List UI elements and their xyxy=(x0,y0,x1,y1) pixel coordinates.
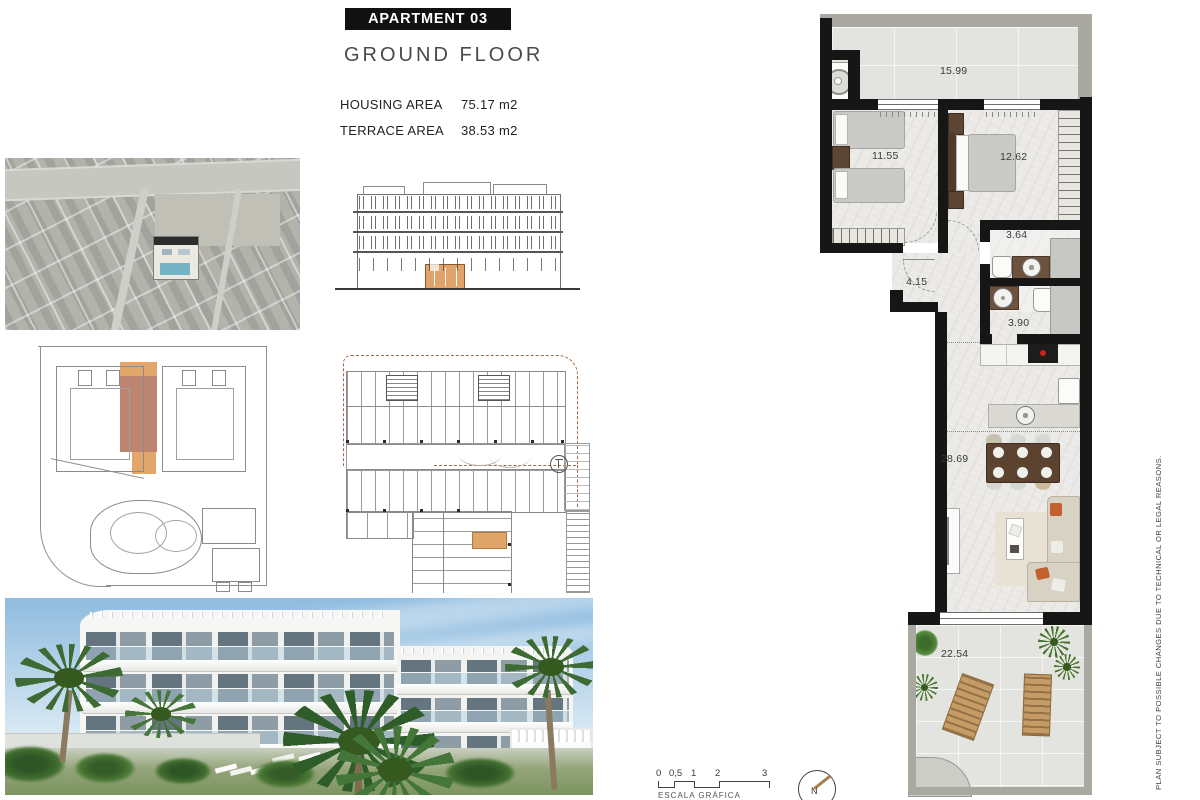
floor-title: GROUND FLOOR xyxy=(344,44,543,67)
wall xyxy=(938,110,948,253)
terrace-wall xyxy=(908,625,916,795)
floor-slab-line xyxy=(353,231,563,233)
floor-slab-line xyxy=(353,211,563,213)
scale-tick: 2 xyxy=(715,768,720,779)
wall xyxy=(848,50,860,100)
balcony-slab xyxy=(80,660,400,671)
compass-north-label: N xyxy=(811,786,818,796)
housing-area-label: HOUSING AREA xyxy=(340,97,443,112)
wall xyxy=(908,612,940,625)
tv-screen xyxy=(947,517,949,565)
scale-segment xyxy=(674,781,695,788)
floor-slab-line xyxy=(353,251,563,253)
shrub xyxy=(155,758,211,784)
shrub xyxy=(75,753,135,783)
storage-row xyxy=(346,511,414,539)
column-dot xyxy=(494,440,497,443)
side-strip xyxy=(564,443,590,511)
disclaimer-text: PLAN SUBJECT TO POSSIBLE CHANGES DUE TO … xyxy=(1154,395,1163,790)
roof-railing xyxy=(90,612,390,618)
site-pool xyxy=(160,263,190,275)
table-item xyxy=(1010,545,1019,553)
building-inner-left xyxy=(70,388,130,460)
amenity-small xyxy=(216,582,230,592)
nightstand xyxy=(832,146,850,170)
room-label-terrace-bottom: 22.54 xyxy=(941,649,968,661)
wardrobe xyxy=(1058,110,1082,224)
building-tab xyxy=(106,370,120,386)
terrace-area-value: 38.53 m2 xyxy=(461,123,518,138)
site-detail xyxy=(162,249,172,255)
column-dot xyxy=(508,583,511,586)
terrace-area-label: TERRACE AREA xyxy=(340,123,444,138)
boundary-line xyxy=(38,346,266,347)
ramp-curve xyxy=(488,441,532,468)
room-label-bedroom-1: 11.55 xyxy=(872,151,899,163)
building-render-photo xyxy=(5,598,593,795)
cooktop xyxy=(1028,344,1058,363)
wall xyxy=(820,243,903,253)
wall xyxy=(980,334,992,344)
wall xyxy=(980,264,990,334)
plan-sheet: APARTMENT 03 GROUND FLOOR HOUSING AREA 7… xyxy=(0,0,1200,800)
ground-line xyxy=(335,288,580,290)
wall xyxy=(938,99,984,110)
wall xyxy=(980,230,990,242)
apartment-title: APARTMENT 03 xyxy=(345,8,511,30)
palm-canopy xyxy=(125,690,197,738)
boundary-line xyxy=(266,346,267,586)
bed-headboard xyxy=(948,133,956,191)
bathroom-sink xyxy=(1022,258,1041,277)
wall xyxy=(980,220,1092,230)
pool-inner xyxy=(155,520,197,552)
symbol-bar xyxy=(555,459,563,460)
column-dot xyxy=(346,509,349,512)
window xyxy=(984,99,1040,110)
column-dot xyxy=(383,440,386,443)
entry-door-leaf xyxy=(903,259,935,260)
sofa-pillow-orange xyxy=(1035,567,1050,580)
site-detail xyxy=(178,249,190,255)
shrub xyxy=(445,758,515,788)
bathroom-sink xyxy=(993,288,1013,308)
glass-balustrade xyxy=(86,646,394,661)
highlighted-site-building xyxy=(153,236,199,280)
building-inner-right xyxy=(176,388,234,460)
garage-parking-bottom xyxy=(346,469,566,513)
sofa-pillow-orange xyxy=(1050,503,1062,516)
cooktop-burner-red xyxy=(1040,350,1046,356)
building-tab xyxy=(182,370,196,386)
window-blind-marks xyxy=(880,112,936,117)
window-blind-marks xyxy=(986,112,1038,117)
building-elevation xyxy=(335,178,580,293)
room-floor-terrace-top xyxy=(832,27,1078,99)
building-tab xyxy=(212,370,226,386)
bed-pillow xyxy=(835,171,848,199)
scale-tick: 1 xyxy=(691,768,696,779)
key-plan xyxy=(338,343,590,593)
window-row-ground xyxy=(359,258,557,271)
palm-canopy xyxy=(15,644,123,712)
room-label-bathroom-1: 3.64 xyxy=(1006,230,1027,242)
sofa-pillow xyxy=(1051,578,1066,592)
place-settings xyxy=(993,447,1004,458)
kitchen-sink xyxy=(1016,406,1035,425)
scale-tick: 0,5 xyxy=(669,768,682,779)
column-dot xyxy=(420,440,423,443)
coffee-table xyxy=(1006,518,1024,560)
satellite-map xyxy=(5,158,300,330)
counter-divider xyxy=(1006,345,1007,365)
room-label-bathroom-2: 3.90 xyxy=(1008,318,1029,330)
amenity-small xyxy=(238,582,252,592)
room-label-bedroom-2: 12.62 xyxy=(1000,152,1027,164)
site-plan xyxy=(30,340,270,592)
sun-lounger xyxy=(1022,674,1052,737)
window xyxy=(878,99,938,110)
garage-lower-wing xyxy=(412,511,512,593)
wall xyxy=(890,302,938,312)
scale-tick: 3 xyxy=(762,768,767,779)
column-dot xyxy=(508,543,511,546)
room-label-hall: 4.15 xyxy=(906,277,927,289)
garage-aisle xyxy=(346,443,566,471)
column-dot xyxy=(561,440,564,443)
wall xyxy=(990,278,1092,286)
column-dot xyxy=(531,440,534,443)
sliding-glass-door xyxy=(940,612,1043,625)
exterior-wall xyxy=(1078,14,1092,99)
amenity-block xyxy=(202,508,256,544)
terrace-wall xyxy=(1084,625,1092,795)
toilet xyxy=(992,256,1012,278)
scale-tick: 0 xyxy=(656,768,661,779)
shower xyxy=(1050,284,1082,336)
kitchen-appliance xyxy=(1058,378,1080,404)
window-row xyxy=(359,196,557,209)
wall xyxy=(1043,612,1092,625)
housing-area-value: 75.17 m2 xyxy=(461,97,518,112)
building-tab xyxy=(78,370,92,386)
washer-drum xyxy=(834,77,842,85)
zone-divider-dotted xyxy=(947,431,1080,432)
dining-table xyxy=(986,443,1060,483)
wing-divider xyxy=(443,512,444,593)
turning-circle-symbol xyxy=(550,455,568,473)
stairs-right xyxy=(566,511,590,593)
column-dot xyxy=(420,509,423,512)
column-dot xyxy=(457,440,460,443)
sofa-pillow xyxy=(1051,541,1063,553)
table-item xyxy=(1008,523,1022,537)
scale-segment xyxy=(694,781,720,788)
stair-core xyxy=(386,375,418,401)
column-dot xyxy=(383,509,386,512)
room-label-living: 28.69 xyxy=(941,454,968,466)
garage-line xyxy=(347,406,565,407)
palm-canopy xyxy=(505,636,593,698)
window-row xyxy=(359,216,557,229)
garage-parking-top xyxy=(346,371,566,445)
nightstand xyxy=(948,113,964,135)
amenity-block xyxy=(212,548,260,582)
column-dot xyxy=(346,440,349,443)
boundary-line xyxy=(40,346,41,496)
zone-divider-dotted xyxy=(947,342,980,343)
stair-core xyxy=(478,375,510,401)
symbol-stem xyxy=(558,459,559,468)
sofa-chaise xyxy=(1027,562,1080,602)
site-roof-edge xyxy=(154,237,198,245)
exterior-wall xyxy=(820,14,1092,27)
palm-plant xyxy=(1054,654,1080,680)
shower xyxy=(1050,238,1082,280)
wall xyxy=(832,99,878,110)
scale-caption: ESCALA GRÁFICA xyxy=(658,791,741,800)
nightstand xyxy=(948,191,964,209)
room-label-terrace-top: 15.99 xyxy=(940,66,967,78)
wall xyxy=(1080,97,1092,625)
garden-wall xyxy=(5,733,260,748)
scale-segment xyxy=(719,781,770,788)
scale-segment xyxy=(658,781,675,788)
window-row xyxy=(359,236,557,249)
bed-pillow xyxy=(835,114,848,145)
terrace-wall xyxy=(908,787,1092,795)
highlighted-storage-unit xyxy=(472,532,507,549)
column-dot xyxy=(457,509,460,512)
